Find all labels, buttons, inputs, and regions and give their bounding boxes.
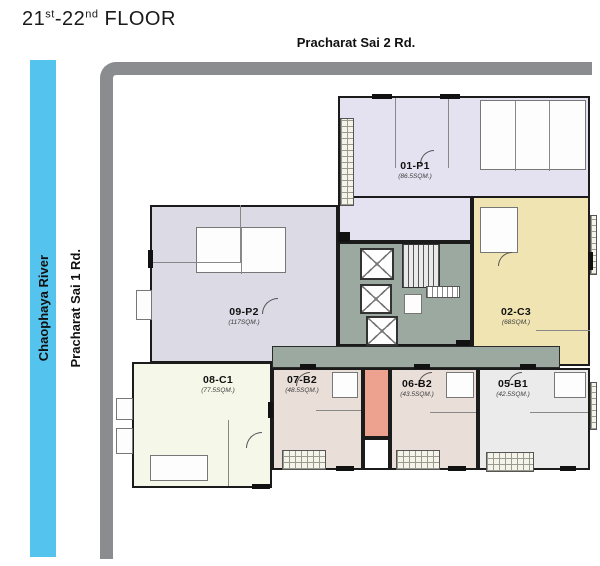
wall-segment xyxy=(148,250,153,268)
terrace-08-c1 xyxy=(150,455,208,481)
elevator-shaft-1 xyxy=(360,248,394,280)
wall-segment xyxy=(560,466,576,471)
unit-name: 01-P1 xyxy=(368,160,462,173)
niche-09-p2 xyxy=(136,290,152,320)
partition xyxy=(395,98,396,168)
bathroom-02-c3 xyxy=(480,207,518,253)
niche-08-c1-lower xyxy=(116,428,133,454)
wall-segment xyxy=(300,364,316,369)
road-label-pracharat-sai-2: Pracharat Sai 2 Rd. xyxy=(246,35,466,50)
unit-name: 05-B1 xyxy=(480,378,546,391)
unit-area: (48.5SQM.) xyxy=(266,387,338,395)
ledge-05-b1 xyxy=(590,382,597,430)
partition xyxy=(530,412,588,413)
unit-01-p1-annex xyxy=(338,196,472,242)
floor-title-suffix: FLOOR xyxy=(105,8,176,30)
balcony-01-p1 xyxy=(340,118,354,206)
bathroom-cluster-01-p1 xyxy=(480,100,586,170)
unit-name: 07-B2 xyxy=(266,374,338,387)
bathroom-05-b1 xyxy=(554,372,586,398)
unit-label-07-b2: 07-B2 (48.5SQM.) xyxy=(266,374,338,395)
floor-ordinal-mid: nd xyxy=(85,8,98,20)
unit-label-02-c3: 02-C3 (68SQM.) xyxy=(470,306,562,327)
wall-segment xyxy=(338,232,350,242)
stairwell-lobby xyxy=(363,438,390,470)
page-title: 21st-22nd FLOOR xyxy=(22,8,176,31)
niche-08-c1-upper xyxy=(116,398,133,420)
partition xyxy=(536,330,590,331)
mailbox-row xyxy=(426,286,460,298)
bath-partition xyxy=(241,228,242,274)
unit-area: (117SQM.) xyxy=(198,319,290,327)
bathroom-cluster-09-p2 xyxy=(196,227,286,273)
unit-label-09-p2: 09-P2 (117SQM.) xyxy=(198,306,290,327)
floor-ordinal-start: st xyxy=(45,8,55,20)
river-label-wrap: Chaophaya River xyxy=(30,60,56,557)
unit-area: (68SQM.) xyxy=(470,319,562,327)
partition xyxy=(316,410,361,411)
balcony-05-b1 xyxy=(486,452,534,472)
unit-area: (77.5SQM.) xyxy=(172,387,264,395)
building-core xyxy=(338,242,472,346)
unit-name: 09-P2 xyxy=(198,306,290,319)
unit-label-08-c1: 08-C1 (77.5SQM.) xyxy=(172,374,264,395)
wall-segment xyxy=(520,364,536,369)
elevator-shaft-3 xyxy=(366,316,398,346)
wall-segment xyxy=(414,364,430,369)
wall-segment xyxy=(456,340,470,346)
partition xyxy=(448,98,449,168)
unit-label-06-b2: 06-B2 (43.5SQM.) xyxy=(384,378,450,399)
road-label-wrap: Pracharat Sai 1 Rd. xyxy=(62,60,88,557)
wall-segment xyxy=(268,402,273,418)
unit-name: 02-C3 xyxy=(470,306,562,319)
unit-name: 06-B2 xyxy=(384,378,450,391)
floor-number-mid: -22 xyxy=(55,8,85,30)
unit-area: (43.5SQM.) xyxy=(384,391,450,399)
unit-area: (42.5SQM.) xyxy=(480,391,546,399)
partition xyxy=(152,262,240,263)
wall-segment xyxy=(336,466,354,471)
unit-label-05-b1: 05-B1 (42.5SQM.) xyxy=(480,378,546,399)
core-stairs xyxy=(402,244,440,288)
balcony-07-b2 xyxy=(282,450,326,470)
wall-segment xyxy=(448,466,466,471)
floor-number-start: 21 xyxy=(22,8,45,30)
elevator-shaft-2 xyxy=(360,284,392,314)
partition xyxy=(430,412,476,413)
unit-area: (86.5SQM.) xyxy=(368,173,462,181)
floor-plan-page: 21st-22nd FLOOR Pracharat Sai 2 Rd. Chao… xyxy=(0,0,600,566)
road-label-pracharat-sai-1: Pracharat Sai 1 Rd. xyxy=(68,249,83,368)
unit-name: 08-C1 xyxy=(172,374,264,387)
bath-partition xyxy=(549,101,550,171)
unit-label-01-p1: 01-P1 (86.5SQM.) xyxy=(368,160,462,181)
bathroom-06-b2 xyxy=(446,372,474,398)
wall-segment xyxy=(440,94,460,99)
river-label: Chaophaya River xyxy=(36,255,51,361)
partition xyxy=(240,205,241,263)
partition xyxy=(228,420,229,486)
wall-segment xyxy=(252,484,270,489)
service-room xyxy=(404,294,422,314)
wall-segment xyxy=(588,252,593,270)
balcony-06-b2 xyxy=(396,450,440,470)
wall-segment xyxy=(372,94,392,99)
bath-partition xyxy=(515,101,516,171)
